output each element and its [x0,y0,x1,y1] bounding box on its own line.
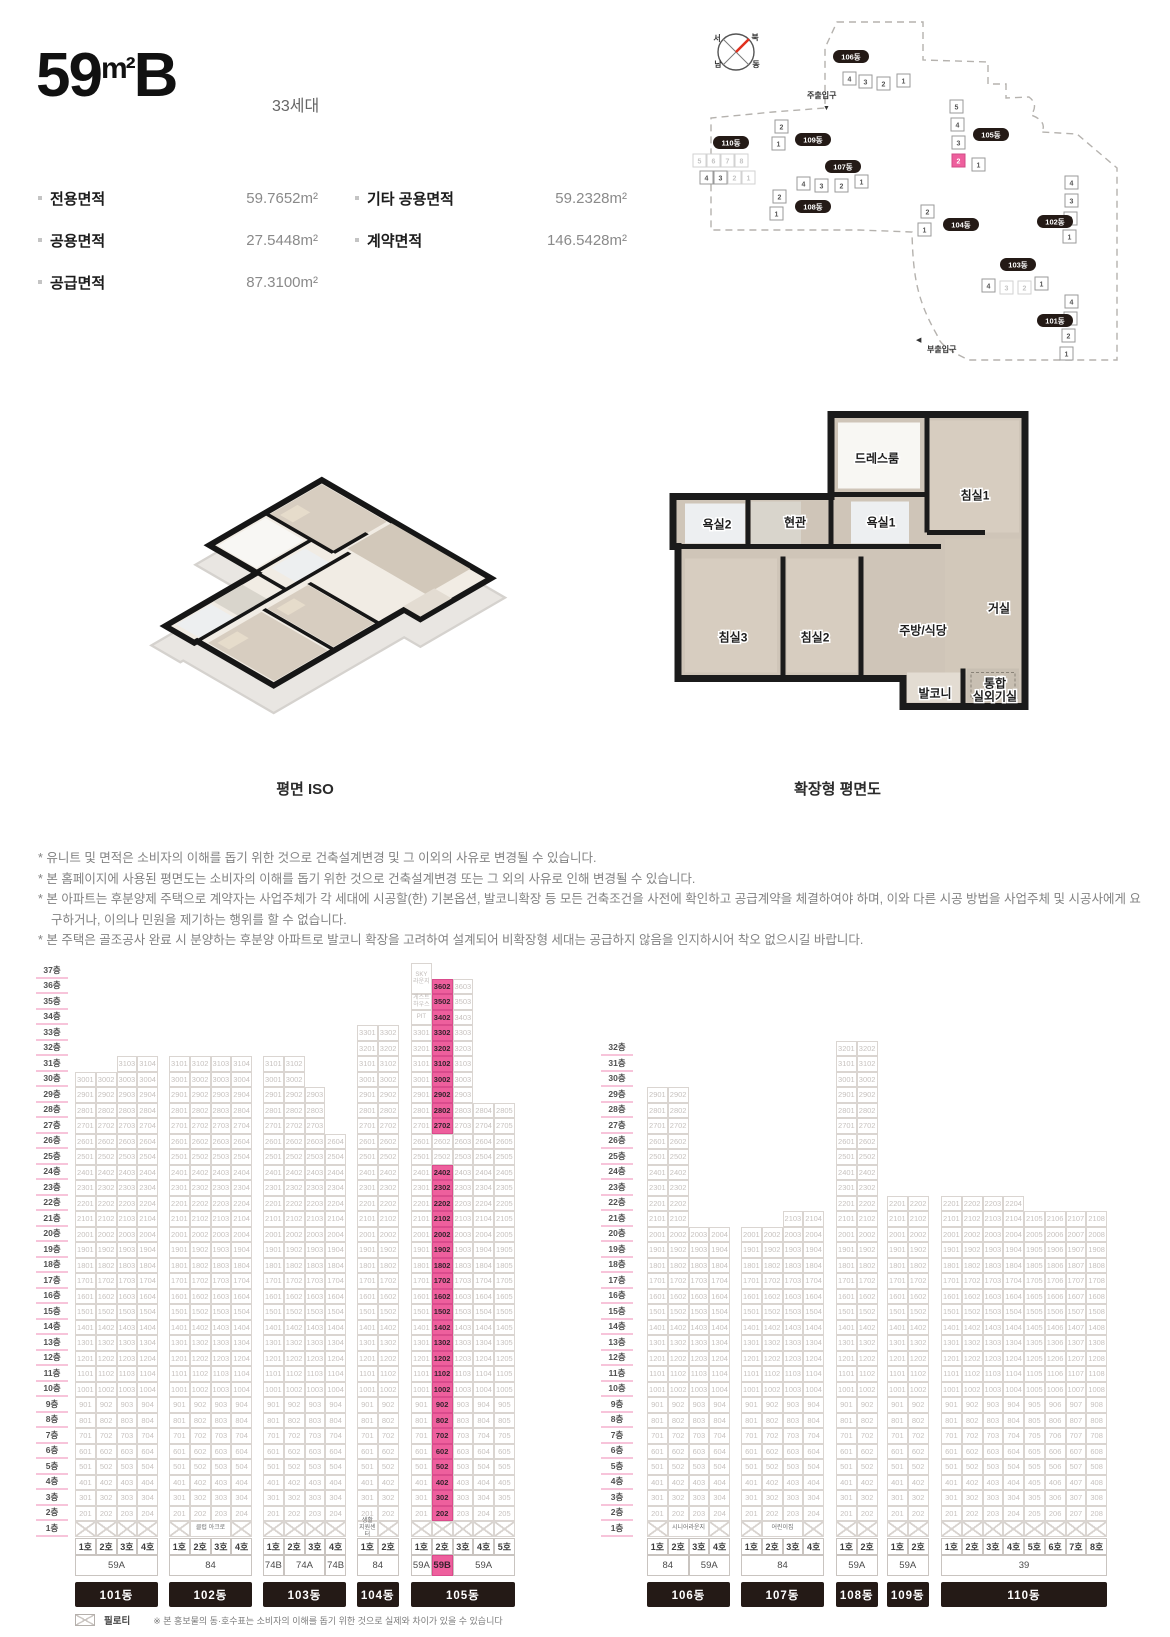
unit-cell: 802 [432,1413,453,1429]
unit-cell: 2503 [305,1149,326,1165]
unit-cell: 301 [741,1490,762,1506]
unit-cell: 1504 [231,1304,252,1320]
unit-cell: 602 [96,1444,117,1460]
unit-cell: 1402 [762,1320,783,1336]
unit-cell: 1001 [887,1382,908,1398]
unit-cell: 1704 [709,1273,730,1289]
unit-cell: 802 [284,1413,305,1429]
floor-label: 35층 [36,994,68,1010]
unit-cell: 501 [169,1459,190,1475]
unit-cell: 1801 [357,1258,378,1274]
site-map-unit-number: 2 [926,210,930,217]
floor-label: 23층 [601,1180,633,1196]
unit-cell: 1402 [908,1320,929,1336]
unit-cell: 705 [494,1428,515,1444]
unit-cell: 3102 [284,1056,305,1072]
piloti-cell [741,1521,762,1537]
unit-cell: 201 [941,1506,962,1522]
unit-cell: 901 [941,1397,962,1413]
floor-label: 17층 [601,1273,633,1289]
floor-label: 19층 [601,1242,633,1258]
piloti-cell [962,1521,983,1537]
unit-cell: 901 [647,1397,668,1413]
unit-cell: 1103 [117,1366,138,1382]
unit-cell: 1704 [137,1273,158,1289]
unit-cell: 2004 [473,1227,494,1243]
unit-cell: 701 [169,1428,190,1444]
unit-cell: 203 [983,1506,1004,1522]
unit-cell: 1801 [941,1258,962,1274]
floor-label: 34층 [36,1010,68,1026]
unit-cell: 1301 [411,1335,432,1351]
unit-cell: 1908 [1086,1242,1107,1258]
unit-cell: 3002 [857,1072,878,1088]
unit-cell: 504 [1003,1459,1024,1475]
unit-cell: 1607 [1066,1289,1087,1305]
unit-cell: 2002 [857,1227,878,1243]
unit-cell: 502 [668,1459,689,1475]
unit-cell: 903 [305,1397,326,1413]
unit-cell: 501 [741,1459,762,1475]
unit-cell: 404 [231,1475,252,1491]
unit-cell: 202 [378,1506,399,1522]
unit-cell: 1701 [647,1273,668,1289]
unit-cell: 301 [941,1490,962,1506]
unit-cell: 1205 [1024,1351,1045,1367]
floor-label: 14층 [601,1320,633,1336]
unit-cell: 1701 [741,1273,762,1289]
households-count: 33세대 [272,92,319,116]
unit-cell: 401 [411,1475,432,1491]
unit-cell: 1001 [941,1382,962,1398]
unit-cell: 1004 [803,1382,824,1398]
unit-cell: 2203 [117,1196,138,1212]
site-map-unit-number: 1 [860,180,864,187]
unit-cell: 902 [284,1397,305,1413]
site-map-unit-number: 1 [777,142,781,149]
site-map-building-label: 102동 [1045,218,1065,227]
unit-cell: 202 [962,1506,983,1522]
unit-cell: 1404 [325,1320,346,1336]
unit-cell: 2004 [137,1227,158,1243]
unit-cell: 802 [908,1413,929,1429]
site-map-building-label: 108동 [803,203,823,212]
unit-cell: 1102 [762,1366,783,1382]
building-name-bar: 108동 [836,1582,878,1607]
unit-cell: 203 [453,1506,474,1522]
unit-cell: 2801 [75,1103,96,1119]
unit-cell: 1401 [941,1320,962,1336]
unit-cell: 1003 [305,1382,326,1398]
unit-cell: 1704 [231,1273,252,1289]
unit-cell: 2002 [668,1227,689,1243]
floor-label: 8층 [601,1413,633,1429]
unit-cell: 1903 [983,1242,1004,1258]
unit-cell: 701 [836,1428,857,1444]
unit-cell: 2601 [647,1134,668,1150]
floor-label: 22층 [601,1196,633,1212]
unit-cell: 504 [325,1459,346,1475]
unit-cell: 2202 [284,1196,305,1212]
area-facts-col2: 기타 공용면적59.2328m² 계약면적146.5428m² [355,186,627,270]
floor-label: 25층 [601,1149,633,1165]
area-row: 전용면적59.7652m² [38,186,318,210]
unit-cell: 1904 [473,1242,494,1258]
unit-cell: 408 [1086,1475,1107,1491]
unit-line-header: 1호 [741,1538,762,1555]
unit-cell: 2801 [647,1103,668,1119]
unit-cell: 2002 [908,1227,929,1243]
unit-cell: 704 [473,1428,494,1444]
unit-cell: 1802 [284,1258,305,1274]
unit-cell: 1302 [762,1335,783,1351]
unit-cell: 2602 [284,1134,305,1150]
unit-cell: 2904 [231,1087,252,1103]
floor-label: 13층 [36,1335,68,1351]
unit-cell: 904 [803,1397,824,1413]
unit-cell: 2801 [836,1103,857,1119]
unit-cell: 301 [357,1490,378,1506]
unit-cell: 1502 [762,1304,783,1320]
unit-cell: 1501 [263,1304,284,1320]
unit-cell: 3402 [432,1010,453,1026]
unit-cell: 1301 [647,1335,668,1351]
unit-cell: 1601 [741,1289,762,1305]
bullet-dot-icon [38,196,42,200]
unit-cell: 3103 [211,1056,232,1072]
bullet-dot-icon [38,280,42,284]
unit-cell: 1103 [211,1366,232,1382]
unit-cell: 1405 [1024,1320,1045,1336]
floor-label: 5층 [601,1459,633,1475]
unit-cell: 602 [190,1444,211,1460]
unit-cell: 2102 [432,1211,453,1227]
unit-cell: 503 [983,1459,1004,1475]
unit-cell: 2802 [432,1103,453,1119]
unit-cell: 3002 [284,1072,305,1088]
unit-cell: 2702 [378,1118,399,1134]
floor-label: 28층 [36,1103,68,1119]
unit-cell: 2003 [689,1227,710,1243]
unit-cell: 402 [378,1475,399,1491]
site-map-building-label: 101동 [1045,317,1065,326]
unit-cell: 703 [783,1428,804,1444]
unit-cell: 2304 [325,1180,346,1196]
unit-cell: 2005 [1024,1227,1045,1243]
unit-cell: 2604 [325,1134,346,1150]
unit-cell: 1402 [962,1320,983,1336]
unit-cell: 2602 [190,1134,211,1150]
unit-cell: 1602 [284,1289,305,1305]
unit-cell: 1101 [411,1366,432,1382]
unit-cell: 2401 [75,1165,96,1181]
unit-cell: 1705 [1024,1273,1045,1289]
unit-cell: 2104 [325,1211,346,1227]
unit-cell: 903 [211,1397,232,1413]
unit-cell: 2104 [137,1211,158,1227]
unit-cell: 908 [1086,1397,1107,1413]
unit-cell: 1702 [432,1273,453,1289]
unit-cell: 2803 [211,1103,232,1119]
unit-cell: 1903 [689,1242,710,1258]
unit-cell: 404 [1003,1475,1024,1491]
unit-type-cell: 59A [887,1555,929,1576]
unit-cell: 1101 [75,1366,96,1382]
floor-label: 32층 [36,1041,68,1057]
unit-cell: 202 [96,1506,117,1522]
unit-cell: 602 [668,1444,689,1460]
floor-label: 3층 [601,1490,633,1506]
unit-cell: 2203 [983,1196,1004,1212]
unit-cell: 302 [762,1490,783,1506]
unit-cell: 2106 [1045,1211,1066,1227]
unit-cell: 602 [908,1444,929,1460]
unit-cell: 1805 [494,1258,515,1274]
unit-cell: 3201 [357,1041,378,1057]
unit-cell: 1901 [741,1242,762,1258]
floor-label: 30층 [36,1072,68,1088]
floor-label: 3층 [36,1490,68,1506]
unit-cell: 2902 [96,1087,117,1103]
floor-label: 37층 [36,963,68,979]
unit-cell: 3101 [263,1056,284,1072]
unit-cell: 304 [473,1490,494,1506]
unit-cell: 401 [887,1475,908,1491]
unit-cell: 1504 [137,1304,158,1320]
unit-cell: 1101 [836,1366,857,1382]
unit-cell: 2204 [325,1196,346,1212]
unit-cell: 601 [75,1444,96,1460]
unit-cell: 3202 [378,1041,399,1057]
unit-cell: 2902 [668,1087,689,1103]
unit-cell: 701 [647,1428,668,1444]
bullet-dot-icon [38,238,42,242]
unit-cell: 302 [284,1490,305,1506]
floor-label: 5층 [36,1459,68,1475]
unit-cell: 801 [941,1413,962,1429]
unit-cell: 2101 [887,1211,908,1227]
unit-type-cell: 59B [432,1555,453,1576]
unit-cell: 1601 [357,1289,378,1305]
unit-cell: 502 [190,1459,211,1475]
unit-cell: 2702 [284,1118,305,1134]
unit-cell: 504 [231,1459,252,1475]
unit-cell: 403 [983,1475,1004,1491]
unit-cell: 402 [908,1475,929,1491]
unit-cell: 501 [75,1459,96,1475]
unit-cell: 1501 [411,1304,432,1320]
unit-cell: 2903 [305,1087,326,1103]
unit-cell: 1602 [857,1289,878,1305]
unit-cell: 1803 [211,1258,232,1274]
site-map-unit-number: 5 [955,105,959,112]
unit-cell: 2102 [857,1211,878,1227]
unit-cell: 901 [887,1397,908,1413]
unit-cell: 2404 [473,1165,494,1181]
floor-label: 30층 [601,1072,633,1088]
unit-line-header: 1호 [941,1538,962,1555]
unit-cell: 2601 [411,1134,432,1150]
unit-cell: 503 [305,1459,326,1475]
unit-cell: 1101 [887,1366,908,1382]
unit-cell: 906 [1045,1397,1066,1413]
unit-cell: 1603 [305,1289,326,1305]
unit-cell: 901 [263,1397,284,1413]
site-map-unit-number: 4 [705,176,709,183]
unit-line-header: 3호 [305,1538,326,1555]
unit-cell: 901 [357,1397,378,1413]
site-map-unit-number: 7 [726,159,730,166]
unit-cell: 1905 [1024,1242,1045,1258]
unit-cell: 1105 [1024,1366,1045,1382]
unit-cell: 2303 [117,1180,138,1196]
unit-cell: 2005 [494,1227,515,1243]
unit-cell: 1204 [137,1351,158,1367]
unit-cell: 2601 [836,1134,857,1150]
floor-label: 31층 [601,1056,633,1072]
unit-cell: 1104 [137,1366,158,1382]
unit-cell: 1801 [169,1258,190,1274]
unit-cell: 3102 [378,1056,399,1072]
unit-cell: 1902 [190,1242,211,1258]
unit-line-header: 1호 [357,1538,378,1555]
unit-cell: 202 [857,1506,878,1522]
unit-cell: 803 [689,1413,710,1429]
unit-cell: 802 [762,1413,783,1429]
unit-cell: 1702 [668,1273,689,1289]
unit-cell: 902 [668,1397,689,1413]
unit-cell: 2002 [762,1227,783,1243]
unit-cell: 1901 [169,1242,190,1258]
unit-cell: 804 [137,1413,158,1429]
piloti-cell [494,1521,515,1537]
unit-cell: 2704 [137,1118,158,1134]
unit-cell: 2002 [962,1227,983,1243]
unit-cell: 301 [836,1490,857,1506]
unit-cell: 1504 [473,1304,494,1320]
unit-cell: 1801 [647,1258,668,1274]
unit-cell: 2605 [494,1134,515,1150]
unit-cell: 1904 [137,1242,158,1258]
unit-cell: 1604 [137,1289,158,1305]
unit-cell: 902 [962,1397,983,1413]
site-map-unit-number: 3 [957,141,961,148]
building-name-bar: 107동 [741,1582,824,1607]
piloti-cell [1045,1521,1066,1537]
unit-cell: 1903 [783,1242,804,1258]
unit-cell: 1903 [211,1242,232,1258]
unit-cell: 1304 [1003,1335,1024,1351]
floor-label: 20층 [36,1227,68,1243]
unit-cell: 3002 [378,1072,399,1088]
floor-label: 9층 [36,1397,68,1413]
unit-cell: 302 [857,1490,878,1506]
unit-cell: 2201 [647,1196,668,1212]
unit-cell: 1104 [803,1366,824,1382]
unit-line-header: 5호 [1024,1538,1045,1555]
unit-line-header: 5호 [494,1538,515,1555]
unit-line-header: 7호 [1066,1538,1087,1555]
unit-line-header: 4호 [1003,1538,1024,1555]
unit-cell: 1903 [305,1242,326,1258]
unit-cell: 1101 [941,1366,962,1382]
unit-cell: 504 [803,1459,824,1475]
unit-cell: 907 [1066,1397,1087,1413]
page-title: 59m²B [36,40,176,111]
unit-cell: 1704 [473,1273,494,1289]
unit-cell: 1202 [668,1351,689,1367]
unit-cell: 301 [887,1490,908,1506]
unit-cell: 3001 [357,1072,378,1088]
unit-cell: 802 [96,1413,117,1429]
unit-cell: 2602 [96,1134,117,1150]
unit-cell: 202 [284,1506,305,1522]
unit-cell: 2301 [647,1180,668,1196]
unit-line-header: 4호 [325,1538,346,1555]
unit-cell: 804 [473,1413,494,1429]
unit-cell: 205 [494,1506,515,1522]
unit-cell: 1103 [983,1366,1004,1382]
floor-label: 29층 [601,1087,633,1103]
floor-label: 27층 [36,1118,68,1134]
unit-cell: 1402 [284,1320,305,1336]
unit-cell: 402 [668,1475,689,1491]
unit-cell: 1603 [117,1289,138,1305]
unit-cell: 701 [941,1428,962,1444]
unit-line-header: 3호 [453,1538,474,1555]
unit-cell: 1105 [494,1366,515,1382]
unit-cell: 2503 [211,1149,232,1165]
unit-cell: 604 [1003,1444,1024,1460]
unit-cell: 1205 [494,1351,515,1367]
piloti-label: 필로티 [104,1613,130,1627]
unit-line-header: 3호 [117,1538,138,1555]
unit-cell: 2203 [305,1196,326,1212]
unit-cell: 1806 [1045,1258,1066,1274]
unit-cell: 1604 [803,1289,824,1305]
piloti-cell [378,1521,399,1537]
unit-cell: 2601 [75,1134,96,1150]
unit-type-cell: 84 [647,1555,689,1576]
unit-cell: 1504 [803,1304,824,1320]
unit-cell: 1902 [668,1242,689,1258]
unit-cell: 1304 [803,1335,824,1351]
disclaimer-line: * 본 아파트는 후분양제 주택으로 계약자는 사업주체가 각 세대에 시공할(… [38,889,1146,930]
unit-cell: 804 [1003,1413,1024,1429]
site-map-unit-number: 2 [957,159,961,166]
unit-cell: 602 [378,1444,399,1460]
unit-cell: 703 [211,1428,232,1444]
building-name-bar: 109동 [887,1582,929,1607]
building-name-bar: 102동 [169,1582,252,1607]
unit-cell: 302 [190,1490,211,1506]
unit-cell: 2703 [211,1118,232,1134]
unit-cell: 1602 [668,1289,689,1305]
unit-cell: 1305 [494,1335,515,1351]
site-map-unit-number: 2 [882,82,886,89]
unit-cell: 2401 [836,1165,857,1181]
site-map-building-label: 103동 [1008,261,1028,270]
unit-cell: 2901 [75,1087,96,1103]
unit-cell: 3101 [411,1056,432,1072]
site-map-building-label: 107동 [833,163,853,172]
unit-cell: 1404 [803,1320,824,1336]
unit-cell: 2202 [668,1196,689,1212]
unit-cell: 801 [357,1413,378,1429]
unit-cell: 502 [857,1459,878,1475]
unit-cell: 503 [689,1459,710,1475]
unit-cell: 403 [453,1475,474,1491]
